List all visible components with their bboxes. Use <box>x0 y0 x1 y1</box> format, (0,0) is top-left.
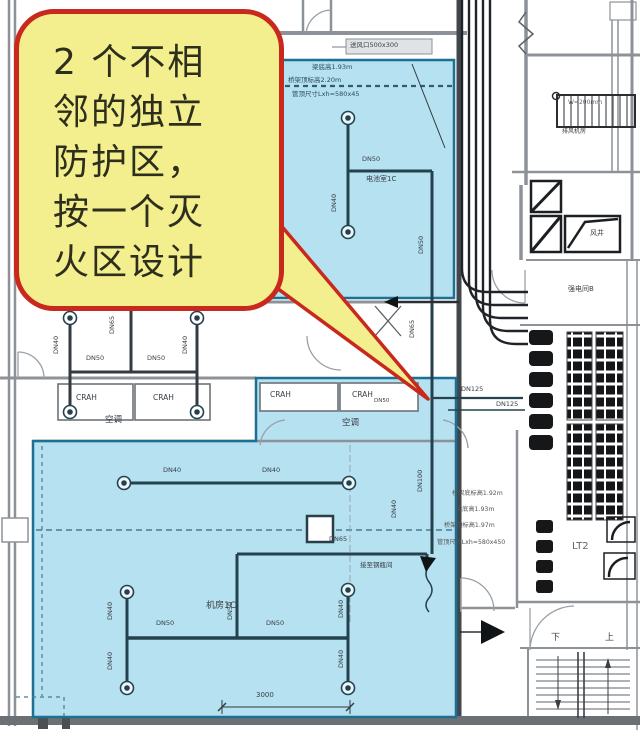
callout-text-line: 火区设计 <box>53 238 279 288</box>
callout-bubble: 2 个不相 邻的独立 防护区， 按一个灭 火区设计 <box>14 9 284 311</box>
callout-text-line: 邻的独立 <box>53 88 279 138</box>
callout-text-line: 防护区， <box>53 138 279 188</box>
floorplan-screenshot: 送风口500x300 梁底高1.93m 桥架顶标高2.20m 管顶尺寸Lxh=5… <box>0 0 640 734</box>
callout-text-line: 按一个灭 <box>53 188 279 238</box>
callout-text-line: 2 个不相 <box>53 38 279 88</box>
